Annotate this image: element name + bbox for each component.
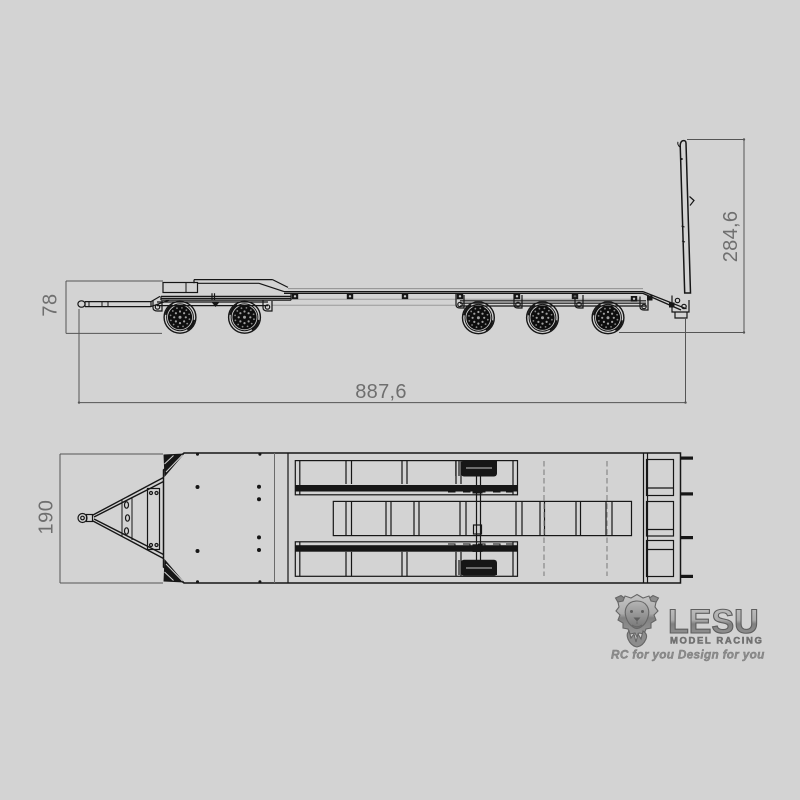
svg-text:RC for you Design for you: RC for you Design for you	[611, 648, 765, 662]
svg-text:190: 190	[35, 500, 57, 535]
svg-text:284,6: 284,6	[720, 211, 742, 263]
svg-text:78: 78	[39, 293, 61, 316]
svg-text:887,6: 887,6	[355, 381, 407, 403]
svg-text:MODEL RACING: MODEL RACING	[670, 636, 763, 647]
